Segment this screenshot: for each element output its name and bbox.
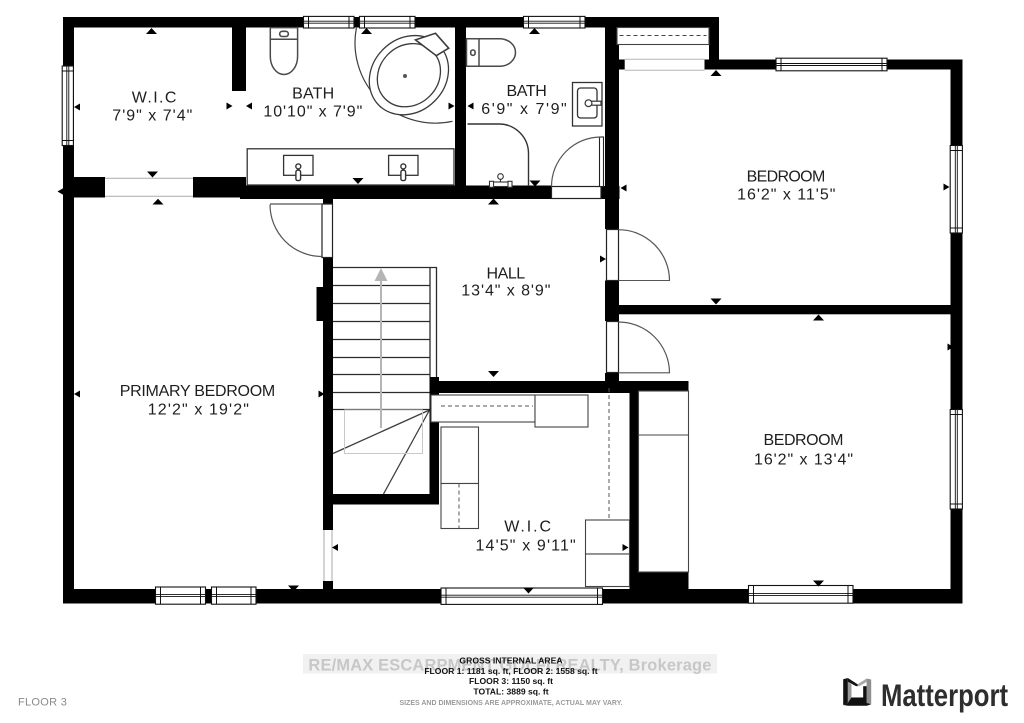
svg-text:SIZES AND DIMENSIONS ARE APPRO: SIZES AND DIMENSIONS ARE APPROXIMATE, AC… (399, 700, 622, 707)
svg-text:10'10" x 7'9": 10'10" x 7'9" (263, 104, 362, 121)
svg-text:7'9" x 7'4": 7'9" x 7'4" (112, 107, 192, 124)
svg-text:16'2" x 13'4": 16'2" x 13'4" (754, 452, 853, 469)
svg-text:12'2" x 19'2": 12'2" x 19'2" (148, 401, 249, 418)
svg-text:FLOOR 3: 1150 sq. ft: FLOOR 3: 1150 sq. ft (469, 676, 553, 686)
svg-text:PRIMARY BEDROOM: PRIMARY BEDROOM (120, 383, 276, 400)
svg-text:6'9" x 7'9": 6'9" x 7'9" (481, 101, 566, 118)
svg-text:14'5" x 9'11": 14'5" x 9'11" (476, 537, 576, 554)
svg-text:HALL: HALL (487, 266, 526, 283)
svg-text:13'4" x 8'9": 13'4" x 8'9" (461, 282, 550, 299)
svg-text:BATH: BATH (292, 86, 334, 103)
svg-text:16'2" x 11'5": 16'2" x 11'5" (737, 186, 835, 203)
svg-text:FLOOR 3: FLOOR 3 (18, 697, 67, 709)
svg-text:BEDROOM: BEDROOM (747, 168, 826, 185)
svg-text:W.I.C: W.I.C (504, 518, 551, 535)
svg-text:FLOOR 1: 1181 sq. ft, FLOOR 2:: FLOOR 1: 1181 sq. ft, FLOOR 2: 1558 sq. … (424, 666, 597, 676)
svg-text:TOTAL: 3889 sq. ft: TOTAL: 3889 sq. ft (473, 686, 548, 696)
svg-text:Matterport: Matterport (881, 677, 1008, 713)
svg-text:GROSS INTERNAL AREA: GROSS INTERNAL AREA (459, 656, 562, 666)
svg-text:BEDROOM: BEDROOM (764, 432, 844, 449)
svg-text:BATH: BATH (507, 83, 547, 100)
svg-text:W.I.C: W.I.C (132, 89, 177, 106)
